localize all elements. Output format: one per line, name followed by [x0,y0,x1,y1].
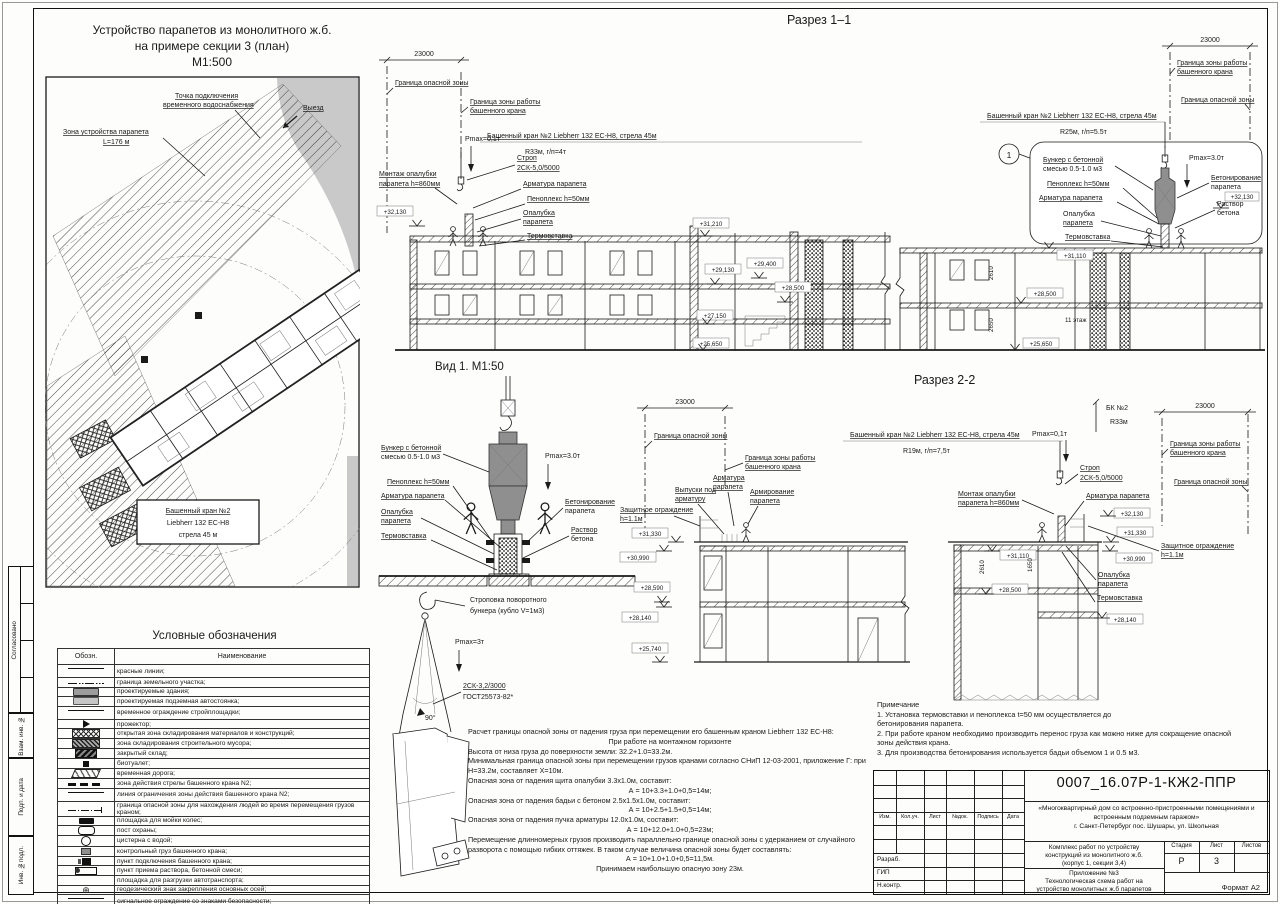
legend-symbol-signal-fence [68,898,104,904]
s1-dim-left: 23000 [414,51,434,58]
calc-line: Перемещение длинномерных грузов производ… [468,835,872,845]
legend-row: граница земельного участка; [58,678,370,688]
side-vzam-label: Взам. инв. № [18,716,25,756]
calc-line: При работе на монтажном горизонте [468,737,872,747]
s1-form-left-1: Опалубка [523,209,555,217]
s2-danger-left: Граница опасной зоны [654,432,727,440]
calc-line: Расчет границы опасной зоны от падения г… [468,727,872,737]
s1-crane-left: Башенный кран №2 Liebherr 132 EC-H8, стр… [487,132,657,140]
v1-form-2: парапета [381,518,411,525]
legend-symbol-danger-zone [68,810,104,811]
section-1-1: Разрез 1–1 23000 Граница опасной зоны Гр… [375,8,1273,362]
s1-sling-2: 2СК-5,0/5000 [517,165,560,172]
side-inv-label: Инв. №подл. [18,846,25,884]
role-nkontr: Н.контр. [877,882,902,889]
sheets-label: Листов [1234,843,1269,849]
section-2-2: Разрез 2-2 23000 Граница опасной зоны Гр… [618,366,1280,734]
s2-sling-2: 2СК-5,0/5000 [1080,475,1123,482]
note-line: 2. При работе краном необходимо производ… [877,729,1267,739]
s1-building-right: +31,110 +28,500 11 этаж +25,650 2610 265… [895,242,1265,350]
note-line: 3. Для производства бетонирования исполь… [877,748,1267,758]
legend-symbol-limit-line [68,792,104,801]
col-koluch: Кол.уч. [896,814,924,820]
s2-workzone-left-2: башенного крана [745,463,801,471]
section1-title: Разрез 1–1 [787,13,851,27]
s2-elev-28140-left: +28,140 [629,615,652,622]
sling-type: 2СК-3,2/3000 [463,683,506,690]
sling-title-1: Строповка поворотного [470,597,547,604]
plan-title-line2: на примере секции 3 (план) [62,38,362,54]
s1-thermo-right: Термовставка [1065,234,1110,241]
legend-row: ⊕геодезический знак закрепления основных… [58,885,370,895]
legend-row: линия ограничения зоны действия башенног… [58,788,370,801]
v1-conc-1: Бетонирование [565,499,615,506]
s2-elev-30990-left: +30,990 [627,555,650,562]
s1-sling-1: Строп [517,155,537,162]
legend-row: площадка для мойки колес; [58,816,370,826]
s2-guard-right-2: h=1.1м [1161,552,1184,559]
legend-symbol-boom-zone [68,783,104,786]
plan-crane-name: Башенный кран №2 [166,507,231,515]
s2-mount-2: парапета h=860мм [958,500,1019,507]
s2-dim-1650: 1650 [1027,558,1034,572]
legend-row: прожектор; [58,719,370,729]
s2-elev-32130: +32,130 [1121,511,1144,518]
s1-rebar-right: Арматура парапета [1039,195,1103,202]
s2-left-zone: 23000 Граница опасной зоны Граница зоны … [620,399,815,542]
v1-penoplex: Пеноплекс h=50мм [387,479,450,486]
legend-row: временное ограждение стройплощадки; [58,706,370,719]
s1-building-left: +31,210 +29,130 +29,400 +28,500 +27,150 … [395,218,895,350]
role-razrab: Разраб. [877,856,900,863]
legend-row: закрытый склад; [58,749,370,759]
s2-guard-right-1: Защитное ограждение [1161,543,1234,550]
legend-row: граница опасной зоны для нахождения люде… [58,801,370,816]
s1-form-left-2: парапета [523,219,553,226]
legend-row: биотуалет; [58,759,370,769]
s2-armir-1: Армирование [750,489,794,496]
sling-bunker-3d [393,728,469,876]
view1-bunker [489,432,527,534]
s1-bunker-label-1: Бункер с бетонной [1043,156,1103,164]
s1-floor-label: 11 этаж [1065,317,1087,324]
s1-workzone-left-1: Граница зоны работы [470,98,540,106]
s1-elev-28500-right: +28,500 [1034,291,1057,298]
s1-penoplex-left: Пеноплекс h=50мм [527,196,590,203]
col-podpis: Подпись [974,814,1002,820]
parapet-zone-length: L=176 м [103,139,130,146]
s2-sling-1: Строп [1080,465,1100,472]
s1-pmax-right: Pmax=3.0т [1189,155,1225,162]
s1-form-right-2: парапета [1063,220,1093,227]
calc-line: разворота с помощью гибких оттяжек. В та… [468,845,872,855]
legend-symbol-mortar-point [75,867,97,875]
s1-mount-1: Монтаж опалубки [379,170,437,178]
col-list: Лист [924,814,946,820]
s1-elev-31110: +31,110 [1064,253,1087,260]
legend-row: красные линии; [58,665,370,678]
s2-rebar-1: Арматура [713,475,745,482]
s1-form-right-1: Опалубка [1063,210,1095,218]
s2-r33: R33м [1110,419,1128,426]
s2-dim-right: 23000 [1195,403,1215,410]
stage-label: Стадия [1164,843,1199,849]
sling-title-2: бункера (кубло V=1м3) [470,607,544,615]
s2-armir-2: парапета [750,498,780,505]
s1-mortar-2: бетона [1217,209,1239,217]
s2-elev-28590: +28,590 [641,585,664,592]
col-data: Дата [1002,814,1024,820]
legend-symbol-security-post [78,826,95,835]
s1-workzone-right-2: башенного крана [1177,68,1233,76]
view1-title: Вид 1. М1:50 [435,361,504,373]
legend-row: проектируемые здания; [58,687,370,697]
s1-conc-1: Бетонирование [1211,175,1261,182]
calc-line: А = 10+1.0+1.0+0,5=11,5м. [468,854,872,864]
plan-title-line1: Устройство парапетов из монолитного ж.б. [62,22,362,38]
view1-labels-left: Бункер с бетонной смесью 0.5-1.0 м3 Пено… [381,444,501,570]
s1-penoplex-right: Пеноплекс h=50мм [1047,181,1110,188]
s1-danger-right: Граница опасной зоны [1181,96,1254,104]
legend-col-symbol: Обозн. [58,649,115,665]
danger-zone-calculation: Расчет границы опасной зоны от падения г… [468,727,872,874]
s2-workzone-right-2: башенного крана [1170,449,1226,457]
notes-block: Примечание 1. Установка термовставки и п… [877,700,1267,758]
legend-table: Обозн. Наименование красные линии; грани… [57,648,370,904]
water-point-label-1: Точка подключения [175,93,238,100]
v1-mortar-2: бетона [571,535,593,543]
exit-label: Выезд [303,105,324,112]
side-stamp-inv: Инв. №подл. [8,835,34,895]
legend-row: пост охраны; [58,826,370,836]
view1-pmax: Pmax=3.0т [545,453,581,460]
s2-danger-right: Граница опасной зоны [1174,478,1247,486]
s1-mount-2: парапета h=860мм [379,181,440,188]
calc-line: Опасная зона от падения пучка арматуры 1… [468,815,872,825]
legend: Условные обозначения Обозн. Наименование… [57,630,372,904]
stage-value: Р [1164,856,1199,866]
s2-guard-left-1: Защитное ограждение [620,507,693,514]
v1-thermo: Термовставка [381,533,426,540]
s1-dim-2650: 2650 [988,318,995,332]
legend-symbol-open-storage [72,729,100,738]
s2-elev-30990-right: +30,990 [1123,556,1146,563]
plan-crane-mark-2 [141,356,148,363]
s1-break-line-2 [896,248,904,350]
s2-rebar-2: парапета [713,484,743,491]
side-stamp-podp: Подп. и дата [8,757,34,837]
side-stamp-approved: Согласовано [8,566,34,714]
calc-line: А = 10+12.0+1.0+0,5=23м; [468,825,872,835]
legend-row: проектируемая подземная автостоянка; [58,697,370,707]
s1-bunker-label-2: смесью 0.5-1.0 м3 [1043,166,1102,173]
s1-workzone-right-1: Граница зоны работы [1177,59,1247,67]
legend-row: цистерна с водой; [58,835,370,846]
sling-angle: 90° [425,714,436,722]
legend-symbol-buildings [73,688,99,696]
sling-hook [420,592,436,609]
role-gip: ГИП [877,869,890,876]
water-point-label-2: временного водоснабжения [163,101,254,109]
s2-dim-left: 23000 [675,399,695,406]
s2-building-right: +31,110 +28,500 +28,140 2610 1650 [948,542,1143,700]
legend-symbol-land-boundary [68,683,104,684]
format-label: Формат А2 [1150,883,1260,892]
note-line: зоны действия крана. [877,738,1267,748]
plan-crane-callout: Башенный кран №2 Liebherr 132 EC-H8 стре… [137,500,259,544]
plan-crane-model: Liebherr 132 EC-H8 [167,520,229,527]
legend-title: Условные обозначения [57,630,372,642]
s1-r25: R25м, г/п=5.5т [1060,129,1108,136]
s1-callout-number: 1 [1007,150,1012,160]
s1-elev-32130-right: +32,130 [1231,194,1254,201]
legend-symbol-parking [73,697,99,705]
sling-pmax: Pmax=3т [455,639,485,646]
calc-line: Опасная зона от падения щита опалубки 3.… [468,776,872,786]
parapet-zone-label: Зона устройства парапета [63,128,149,136]
site-plan: Точка подключения временного водоснабжен… [45,76,360,588]
side-approved-label: Согласовано [11,621,18,659]
legend-symbol-wheel-wash [79,818,94,824]
s1-right-zone: 23000 Граница зоны работы башенного кран… [980,37,1262,248]
s1-elev-31210: +31,210 [700,221,723,228]
v1-conc-2: парапета [565,508,595,515]
s2-form-2: парапета [1098,581,1128,588]
view-1: Вид 1. М1:50 Pmax=3.0т Бункер [373,352,641,594]
s1-danger-left: Граница опасной зоны [395,79,468,87]
legend-symbol-water-tank [81,836,91,846]
plan-scale: М1:500 [62,54,362,70]
notes-title: Примечание [877,700,1267,710]
v1-mortar-1: Раствор [571,527,598,534]
s2-workzone-left-1: Граница зоны работы [745,454,815,462]
section2-title: Разрез 2-2 [914,373,975,387]
legend-row: пункт приема раствора, бетонной смеси; [58,866,370,876]
side-stamp-vzam: Взам. инв. № [8,712,34,759]
legend-row: площадка для разгрузки автотранспорта; [58,875,370,885]
appendix-label: Приложение №3 Технологическая схема рабо… [1024,870,1164,894]
project-name: «Многоквартирный дом со встроенно-пристр… [1026,804,1267,831]
s1-left-zone: 23000 Граница опасной зоны Граница зоны … [377,51,862,246]
s2-vypuski-1: Выпуски под [675,487,716,494]
s1-conc-2: парапета [1211,184,1241,191]
s2-bk: БК №2 [1106,405,1128,412]
s2-thermo: Термовставка [1097,595,1142,602]
calc-line: А = 10+2.5+1.5+0,5=14м; [468,805,872,815]
plan-crane-boom: стрела 45 м [179,532,218,539]
col-izm: Изм. [874,814,896,820]
calc-line: Принимаем наибольшую опасную зону 23м. [468,864,872,874]
s1-rebar-left: Арматура парапета [523,181,587,188]
s2-guard-left-2: h=1.1м [620,516,643,523]
s1-workzone-left-2: башенного крана [470,107,526,115]
legend-row: зона действия стрелы башенного крана N2; [58,778,370,788]
s2-elev-31330-left: +31,330 [639,531,662,538]
legend-symbol-unloading [68,876,104,884]
legend-symbol-crane-connection [82,858,91,865]
calc-line: Н=33.2м, составляет Х=10м. [468,766,872,776]
s2-r19: R19м, г/п=7,5т [903,448,951,455]
legend-row: зона складирования строительного мусора; [58,739,370,749]
sheet-label: Лист [1199,843,1234,849]
legend-col-name: Наименование [115,649,370,665]
s1-elev-29130: +29,130 [712,267,735,274]
s1-mortar-1: Раствор [1217,201,1244,208]
s1-break-line [881,232,889,350]
note-line: 1. Установка термовставки и пеноплекса t… [877,710,1267,720]
view1-crane-hook [500,376,515,431]
s2-elev-28140-right: +28,140 [1114,617,1137,624]
s2-elev-28500: +28,500 [999,587,1022,594]
plan-title: Устройство парапетов из монолитного ж.б.… [62,22,362,70]
v1-bunker-1: Бункер с бетонной [381,444,441,452]
note-line: бетонирования парапета. [877,719,1267,729]
s1-elev-28500-left: +28,500 [782,285,805,292]
legend-symbol-biotoilet [83,761,89,767]
s2-building-left: +30,990 +28,590 +28,140 +25,740 [620,542,910,662]
s1-elev-32130-left: +32,130 [384,209,407,216]
s1-crane-right: Башенный кран №2 Liebherr 132 EC-H8, стр… [987,112,1157,120]
s1-elev-29400: +29,400 [754,261,777,268]
plan-crane-mark-1 [195,312,202,319]
s1-dim-right: 23000 [1200,37,1220,44]
calc-line: Минимальная граница опасной зоны при пер… [468,756,872,766]
side-podp-label: Подп. и дата [18,778,25,816]
s2-mount-1: Монтаж опалубки [958,490,1016,498]
legend-symbol-closed-warehouse [75,749,97,758]
legend-row: сигнальное ограждение со знаками безопас… [58,895,370,904]
s2-elev-25740: +25,740 [639,646,662,653]
legend-row: открытая зона складирования материалов и… [58,729,370,739]
legend-row: пункт подключения башенного крана; [58,856,370,866]
s2-elev-31330-right: +31,330 [1124,530,1147,537]
drawing-sheet: Устройство парапетов из монолитного ж.б.… [0,0,1280,904]
legend-symbol-floodlight-icon [83,720,90,728]
legend-symbol-temp-road [71,769,101,778]
s2-pmax01: Pmax=0,1т [1032,431,1068,438]
s2-form-1: Опалубка [1098,571,1130,579]
title-block: 0007_16.07Р-1-КЖ2-ППР «Многоквартирный д… [873,770,1270,895]
s1-elev-25650-left: +25,650 [700,341,723,348]
view1-labels-right: Бетонирование парапета Раствор бетона [523,499,615,558]
legend-symbol-red-lines [68,668,104,677]
doc-number: 0007_16.07Р-1-КЖ2-ППР [1024,775,1269,791]
sling-gost: ГОСТ25573-82* [463,694,514,701]
s1-elev-25650-right: +25,650 [1030,341,1053,348]
legend-symbol-waste-zone [72,739,100,748]
s2-crane-name: Башенный кран №2 Liebherr 132 EC-H8, стр… [850,431,1020,439]
v1-rebar: Арматура парапета [381,493,445,500]
v1-bunker-2: смесью 0.5-1.0 м3 [381,454,440,461]
v1-form-1: Опалубка [381,508,413,516]
s2-workzone-right-1: Граница зоны работы [1170,440,1240,448]
calc-line: А = 10+3.3+1.0+0,5=14м; [468,786,872,796]
calc-line: Опасная зона от падения бадьи с бетоном … [468,796,872,806]
sheet-value: 3 [1199,856,1234,866]
s1-dim-2610: 2610 [988,266,995,280]
legend-row: контрольный груз башенного крана; [58,846,370,856]
legend-row: временная дорога; [58,768,370,778]
s2-vypuski-2: арматуру [675,496,706,503]
s1-elev-27150: +27,150 [704,313,727,320]
legend-symbol-control-weight [81,848,91,855]
legend-symbol-fence [68,710,104,719]
calc-line: Высота от низа груза до поверхности земл… [468,747,872,757]
legend-symbol-geodesic-mark: ⊕ [60,886,112,894]
col-ndok: №док. [946,814,974,820]
s2-dim-2610: 2610 [979,560,986,574]
work-description: Комплекс работ по устройству конструкций… [1024,844,1164,868]
s2-rebar-right: Арматура парапета [1086,493,1150,500]
